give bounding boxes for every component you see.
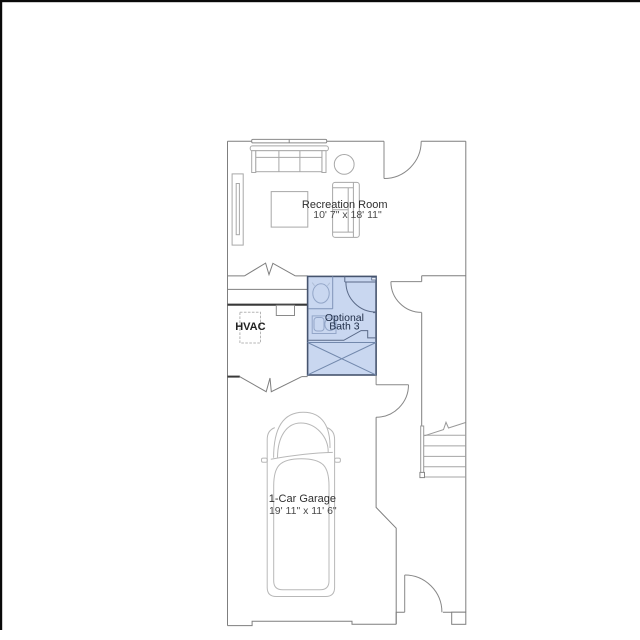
svg-text:HVAC: HVAC [235, 321, 265, 333]
svg-text:19' 11" x 11' 6": 19' 11" x 11' 6" [269, 505, 337, 517]
svg-text:Bath 3: Bath 3 [329, 321, 360, 333]
svg-text:1-Car Garage: 1-Car Garage [269, 493, 336, 505]
svg-text:10' 7" x 18' 11": 10' 7" x 18' 11" [313, 209, 382, 221]
